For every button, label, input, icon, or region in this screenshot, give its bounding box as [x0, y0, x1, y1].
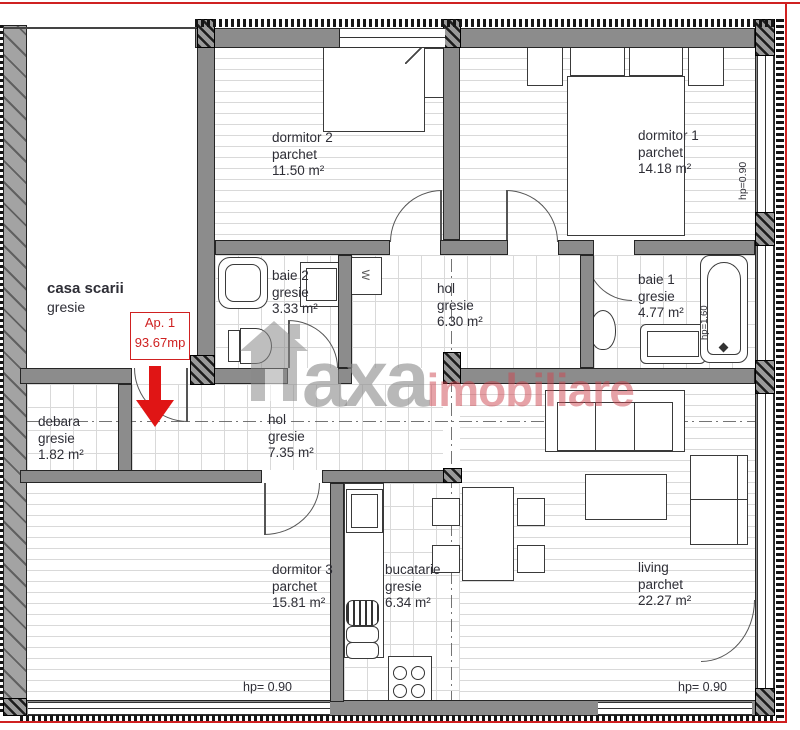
- room-name: baie 1: [638, 272, 684, 289]
- room-finish: gresie: [38, 431, 84, 448]
- wall-interior: [460, 368, 755, 384]
- wall-interior: [440, 240, 508, 255]
- room-label-living: living parchet 22.27 m²: [638, 560, 691, 610]
- boundary-line-bottom: [0, 721, 787, 723]
- wall-interior: [20, 368, 132, 384]
- room-name: hol: [437, 281, 483, 298]
- window-baie1: [757, 246, 774, 360]
- room-name: dormitor 1: [638, 128, 699, 145]
- wall-apartment-left: [197, 28, 215, 373]
- bathtub-inner: [707, 262, 741, 355]
- room-area: 6.30 m²: [437, 314, 483, 331]
- column-block: [190, 355, 215, 385]
- room-name: hol: [268, 412, 314, 429]
- hp-label-bottom-right: hp= 0.90: [678, 680, 727, 694]
- wall-interior: [20, 470, 262, 483]
- insulation-strip: [195, 19, 775, 27]
- room-finish: gresie: [638, 289, 684, 306]
- sofa-cushion: [595, 402, 634, 451]
- column-block: [755, 688, 775, 716]
- sink-bowl: [346, 626, 379, 643]
- room-finish: parchet: [272, 147, 333, 164]
- sofa-cushion: [557, 402, 595, 451]
- room-label-dormitor1: dormitor 1 parchet 14.18 m²: [638, 128, 699, 178]
- pillow: [570, 45, 625, 76]
- wall-baie2-right: [338, 255, 352, 368]
- wall-interior: [558, 240, 594, 255]
- wall-exterior-top: [445, 28, 755, 48]
- wall-interior: [322, 470, 462, 483]
- dining-chair: [432, 498, 460, 526]
- insulation-strip: [0, 25, 3, 715]
- entrance-arrow-head: [136, 400, 174, 427]
- room-finish: gresie: [272, 285, 318, 302]
- dining-chair: [517, 545, 545, 573]
- door-leaf: [288, 320, 290, 368]
- sink-bowl: [346, 642, 379, 659]
- room-name: debara: [38, 414, 84, 431]
- room-label-hol7: hol gresie 7.35 m²: [268, 412, 314, 462]
- hp-label-bathtub: hp=1.60: [699, 276, 710, 340]
- kitchen-radiator: [346, 600, 379, 626]
- toilet-tank: [228, 330, 240, 362]
- column-block: [755, 212, 775, 246]
- room-area: 7.35 m²: [268, 445, 314, 462]
- room-label-baie2: baie 2 gresie 3.33 m²: [272, 268, 318, 318]
- window-living-bottom: [598, 702, 752, 715]
- bath-cabinet-inner: [647, 331, 699, 357]
- column-block: [3, 698, 27, 716]
- room-label-debara: debara gresie 1.82 m²: [38, 414, 84, 464]
- wall-exterior-top: [195, 28, 340, 48]
- entrance-arrow: [136, 366, 174, 428]
- room-area: 3.33 m²: [272, 301, 318, 318]
- washing-machine: W: [350, 257, 382, 295]
- wall-interior: [634, 240, 755, 255]
- room-label-casa-scarii: casa scarii gresie: [47, 280, 124, 316]
- wall-interior: [215, 240, 390, 255]
- room-finish: gresie: [268, 429, 314, 446]
- door-leaf: [440, 190, 442, 242]
- room-area: 1.82 m²: [38, 447, 84, 464]
- window-dormitor3: [28, 702, 330, 715]
- hp-label-right-wall: hp=0.90: [737, 130, 749, 200]
- stove-burner: [393, 666, 407, 680]
- hp-label-bottom-left: hp= 0.90: [243, 680, 292, 694]
- stove-burner: [411, 684, 425, 698]
- sofa-cushion: [635, 402, 673, 451]
- sofa-cushions: [557, 402, 673, 451]
- insulation-strip: [776, 19, 784, 719]
- apartment-badge-name: Ap. 1: [131, 313, 189, 333]
- nightstand: [688, 44, 724, 86]
- room-finish: parchet: [638, 145, 699, 162]
- room-name: bucatarie: [385, 562, 441, 579]
- loveseat-back: [737, 456, 738, 544]
- room-area: 4.77 m²: [638, 305, 684, 322]
- boundary-line-top: [0, 2, 800, 4]
- stove-burner: [411, 666, 425, 680]
- column-block: [443, 352, 461, 384]
- room-finish: gresie: [385, 579, 441, 596]
- room-label-dormitor2: dormitor 2 parchet 11.50 m²: [272, 130, 333, 180]
- room-label-hol6: hol gresie 6.30 m²: [437, 281, 483, 331]
- entrance-arrow-shaft: [149, 366, 161, 402]
- room-name: casa scarii: [47, 280, 124, 299]
- stove-burner: [393, 684, 407, 698]
- room-finish: parchet: [638, 577, 691, 594]
- room-name: baie 2: [272, 268, 318, 285]
- nightstand: [527, 44, 563, 86]
- room-label-dormitor3: dormitor 3 parchet 15.81 m²: [272, 562, 333, 612]
- door-leaf: [506, 190, 508, 242]
- wall-debara-right: [118, 384, 132, 472]
- loveseat-divider: [691, 499, 747, 500]
- pillow: [629, 45, 683, 76]
- room-area: 11.50 m²: [272, 163, 333, 180]
- wall-interior: [338, 368, 352, 384]
- dining-table: [462, 487, 514, 581]
- room-finish: parchet: [272, 579, 333, 596]
- dining-chair: [517, 498, 545, 526]
- room-name: living: [638, 560, 691, 577]
- fridge-inner: [351, 494, 378, 528]
- window-dormitor1: [757, 56, 774, 212]
- room-name: dormitor 2: [272, 130, 333, 147]
- room-label-bucatarie: bucatarie gresie 6.34 m²: [385, 562, 441, 612]
- shower-tray-inner: [225, 264, 261, 302]
- washing-machine-label: W: [359, 270, 371, 280]
- boundary-line-right: [785, 2, 787, 723]
- room-area: 6.34 m²: [385, 595, 441, 612]
- room-finish: gresie: [437, 298, 483, 315]
- room-finish: gresie: [47, 299, 124, 316]
- apartment-badge-area: 93.67mp: [131, 333, 189, 353]
- wall-line: [3, 27, 197, 29]
- room-label-baie1: baie 1 gresie 4.77 m²: [638, 272, 684, 322]
- coffee-table: [585, 474, 667, 520]
- wall-baie1-left: [580, 255, 594, 368]
- room-name: dormitor 3: [272, 562, 333, 579]
- door-leaf: [186, 368, 188, 422]
- door-leaf: [264, 483, 266, 535]
- wall-dorm1-dorm2: [443, 28, 460, 240]
- window-living-right: [757, 394, 774, 688]
- room-area: 14.18 m²: [638, 161, 699, 178]
- column-block: [755, 360, 775, 394]
- window-dormitor2: [340, 28, 445, 48]
- column-block: [443, 468, 462, 483]
- floor-plan-canvas: W: [0, 0, 800, 730]
- toilet-bowl: [240, 328, 272, 364]
- room-area: 22.27 m²: [638, 593, 691, 610]
- room-area: 15.81 m²: [272, 595, 333, 612]
- apartment-badge: Ap. 1 93.67mp: [130, 312, 190, 360]
